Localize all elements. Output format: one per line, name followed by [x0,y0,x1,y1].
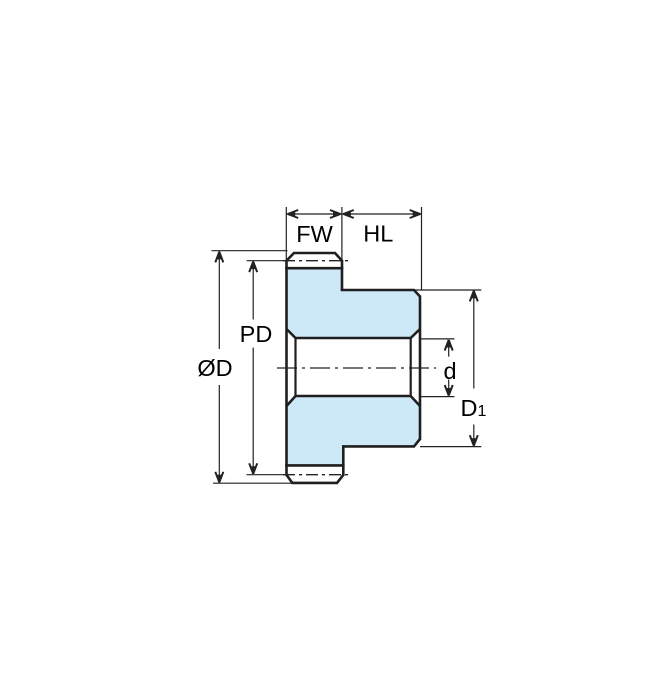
svg-text:d: d [443,358,456,384]
svg-text:HL: HL [363,220,393,246]
svg-text:FW: FW [296,221,333,247]
svg-text:ØD: ØD [197,355,232,381]
svg-text:PD: PD [240,321,273,347]
